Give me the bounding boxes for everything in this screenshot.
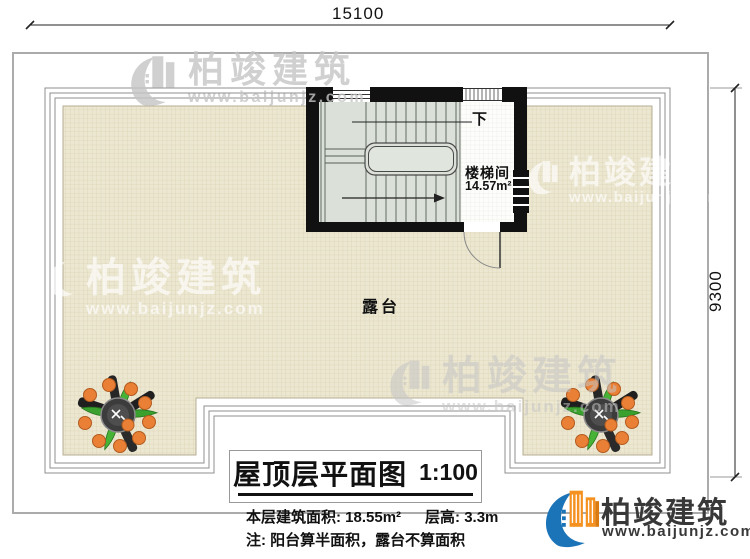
title-meta-line: 本层建筑面积: 18.55m² 层高: 3.3m xyxy=(246,506,498,527)
brand-url: www.baijunjz.com xyxy=(602,523,750,540)
title-underline xyxy=(238,493,473,496)
dimension-right-label: 9300 xyxy=(706,270,726,312)
floor-height-text: 层高: 3.3m xyxy=(425,506,498,527)
window-right-wall xyxy=(513,170,529,213)
stairwell-area-label: 14.57m² xyxy=(465,179,512,193)
title-note-line: 注: 阳台算半面积，露台不算面积 xyxy=(246,529,465,550)
terrace-label: 露台 xyxy=(362,293,400,317)
stair-down-label: 下 xyxy=(472,108,487,129)
floor-plan-page: 柏竣建筑 www.baijunjz.com 柏竣建筑 www.baijunjz.… xyxy=(0,0,750,559)
dimension-top-label: 15100 xyxy=(332,4,384,24)
stair-railing xyxy=(365,143,457,175)
title-block: 屋顶层平面图 1:100 xyxy=(229,450,482,503)
window-top-left xyxy=(333,87,370,102)
window-top-right xyxy=(463,87,502,102)
plan-scale: 1:100 xyxy=(419,459,478,486)
note-text: 注: 阳台算半面积，露台不算面积 xyxy=(246,529,465,550)
plan-title: 屋顶层平面图 xyxy=(233,453,407,493)
floor-area-text: 本层建筑面积: 18.55m² xyxy=(246,506,401,527)
